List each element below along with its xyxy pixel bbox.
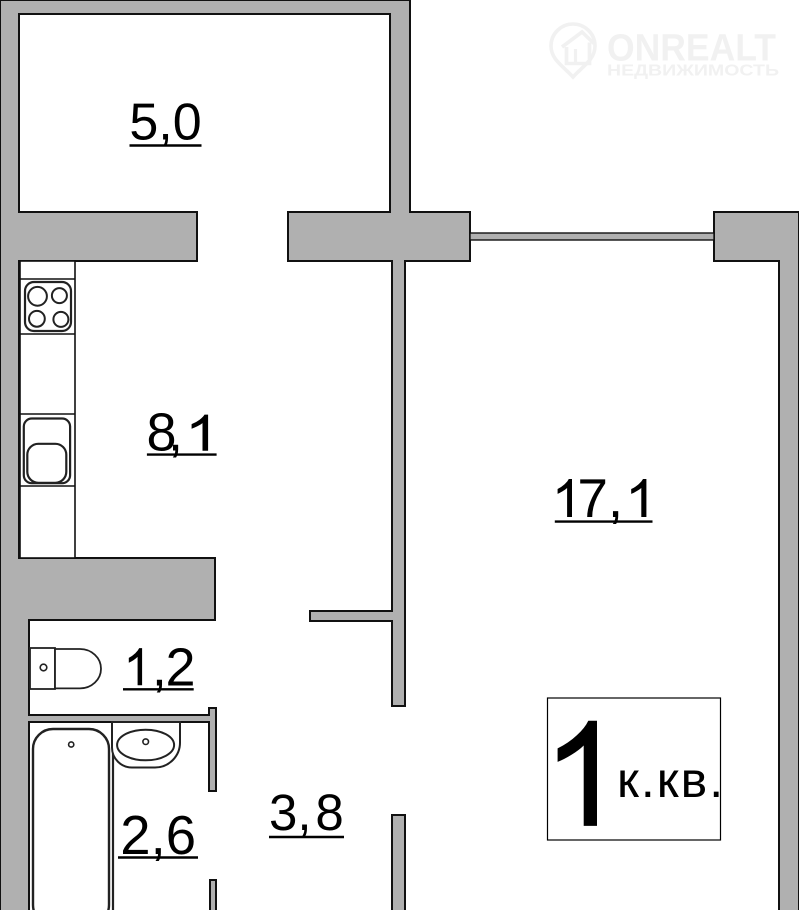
svg-text:7: 7 xyxy=(577,467,608,529)
svg-text:5,0: 5,0 xyxy=(129,94,201,152)
svg-text:8: 8 xyxy=(315,784,343,841)
svg-text:,: , xyxy=(608,467,623,529)
svg-text:к.кв.: к.кв. xyxy=(617,752,725,808)
svg-text:3,: 3, xyxy=(269,784,312,841)
svg-text:НЕДВИЖИМОСТЬ: НЕДВИЖИМОСТЬ xyxy=(607,63,779,80)
